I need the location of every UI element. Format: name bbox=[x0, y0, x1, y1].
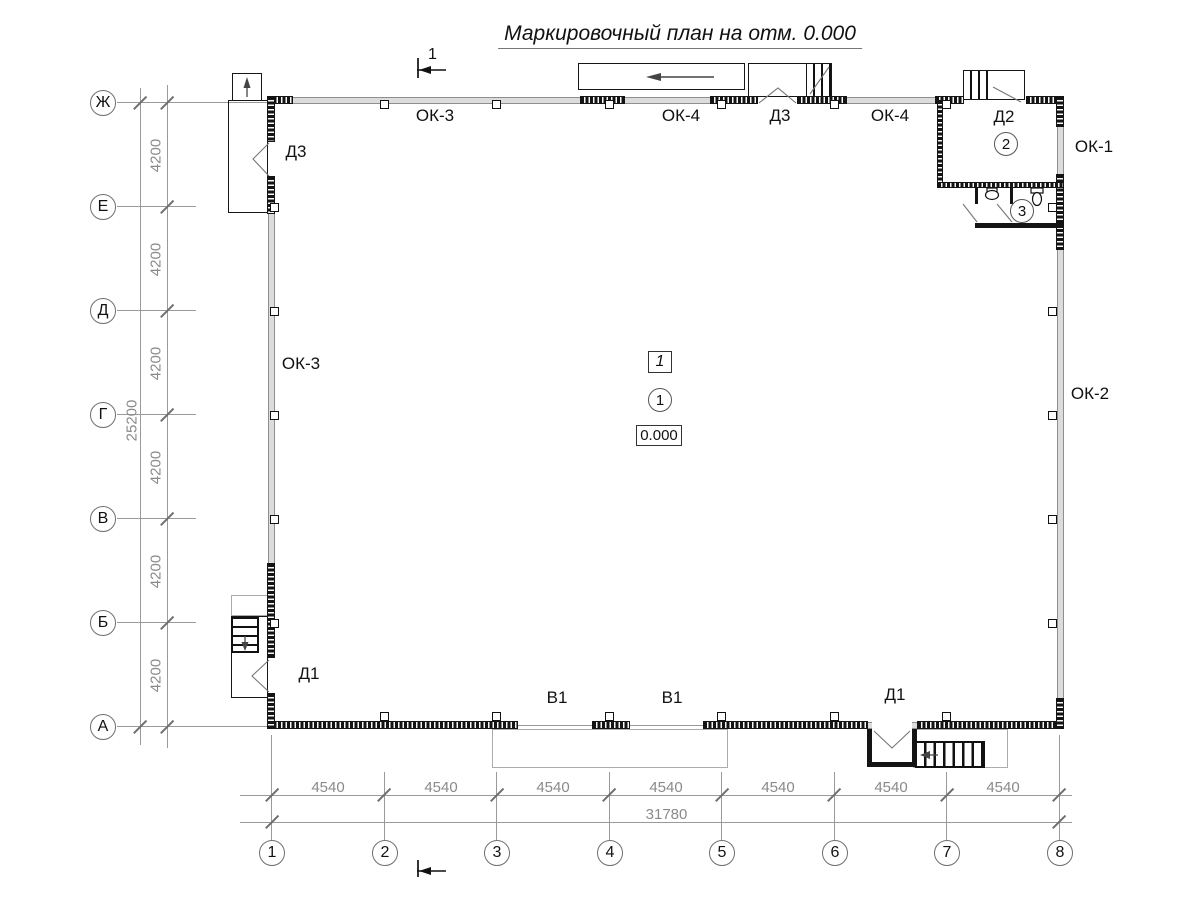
wall-pier bbox=[592, 721, 630, 729]
col-axis-circle: 5 bbox=[709, 840, 735, 866]
column-marker bbox=[1048, 515, 1057, 524]
column-marker bbox=[380, 100, 389, 109]
wall-pier bbox=[1056, 96, 1064, 127]
label-door: Д3 bbox=[286, 142, 307, 162]
col-axis-circle: 8 bbox=[1047, 840, 1073, 866]
dim-text: 4200 bbox=[148, 651, 165, 701]
drawing-title: Маркировочный план на отм. 0.000 bbox=[498, 22, 862, 49]
section-mark-bottom bbox=[417, 860, 446, 877]
grid-extension-line bbox=[384, 772, 385, 841]
row-axis-circle: Д bbox=[90, 298, 116, 324]
room-number-circle: 2 bbox=[994, 132, 1018, 156]
row-axis-circle: Б bbox=[90, 610, 116, 636]
wall-pier bbox=[703, 721, 868, 729]
washroom-wall-bottom bbox=[975, 223, 1064, 228]
column-marker bbox=[942, 100, 951, 109]
washroom-partition bbox=[975, 188, 978, 204]
dim-text: 4200 bbox=[148, 443, 165, 493]
wall-pier bbox=[1056, 698, 1064, 729]
gate-line bbox=[630, 725, 703, 726]
dim-text: 4200 bbox=[148, 339, 165, 389]
recess-wall bbox=[867, 762, 917, 767]
column-marker bbox=[1048, 307, 1057, 316]
dim-text: 4540 bbox=[871, 779, 911, 796]
column-marker bbox=[270, 619, 279, 628]
column-marker bbox=[1048, 619, 1057, 628]
row-axis-circle: А bbox=[90, 714, 116, 740]
column-marker bbox=[380, 712, 389, 721]
col-axis-circle: 7 bbox=[934, 840, 960, 866]
col-axis-circle: 3 bbox=[484, 840, 510, 866]
toilet-icon bbox=[1033, 193, 1042, 206]
column-marker bbox=[1048, 411, 1057, 420]
elevation-marker: 0.000 bbox=[636, 425, 682, 446]
wall-pier bbox=[917, 721, 1064, 729]
porch-topleft bbox=[228, 100, 268, 213]
porch-bottomleft-stair bbox=[231, 617, 259, 653]
sink-icon bbox=[987, 188, 997, 192]
grid-extension-line bbox=[721, 772, 722, 841]
floor-type-marker: 1 bbox=[648, 351, 672, 373]
label-window: ОК-2 bbox=[1071, 384, 1109, 404]
dim-text: 4540 bbox=[308, 779, 348, 796]
column-marker bbox=[830, 712, 839, 721]
grid-extension-line bbox=[117, 310, 196, 311]
wall-pier bbox=[797, 96, 847, 104]
label-gate: В1 bbox=[662, 688, 683, 708]
stair-bottomright bbox=[915, 741, 985, 768]
grid-extension-line bbox=[1059, 735, 1060, 841]
door-opening-d1-left bbox=[268, 658, 275, 693]
room2-wall-bottom bbox=[937, 182, 1064, 188]
col-axis-circle: 4 bbox=[597, 840, 623, 866]
label-door: Д3 bbox=[770, 106, 791, 126]
column-marker bbox=[717, 712, 726, 721]
label-window: ОК-4 bbox=[871, 106, 909, 126]
porch-shaft-topleft bbox=[232, 73, 262, 101]
dim-text: 4540 bbox=[421, 779, 461, 796]
grid-extension-line bbox=[117, 622, 196, 623]
room-number-circle: 3 bbox=[1010, 199, 1034, 223]
column-marker bbox=[270, 515, 279, 524]
col-axis-circle: 6 bbox=[822, 840, 848, 866]
row-axis-circle: В bbox=[90, 506, 116, 532]
column-marker bbox=[1048, 203, 1057, 212]
wall-pier bbox=[268, 721, 518, 729]
porch-topright-stair bbox=[964, 71, 988, 99]
grid-extension-line bbox=[271, 735, 272, 841]
column-marker bbox=[270, 411, 279, 420]
grid-extension-line bbox=[117, 206, 196, 207]
grid-extension-line bbox=[609, 772, 610, 841]
wall-pier bbox=[267, 563, 275, 658]
column-marker bbox=[492, 100, 501, 109]
door-opening-d3-top bbox=[758, 97, 797, 104]
column-marker bbox=[270, 307, 279, 316]
row-axis-circle: Г bbox=[90, 402, 116, 428]
label-window: ОК-1 bbox=[1075, 137, 1113, 157]
section-number: 1 bbox=[428, 46, 437, 64]
sink-icon bbox=[986, 191, 999, 200]
porch-landing bbox=[231, 595, 268, 616]
column-marker bbox=[605, 100, 614, 109]
grid-extension-line bbox=[946, 772, 947, 841]
dim-text-total: 25200 bbox=[124, 389, 141, 453]
label-door: Д1 bbox=[885, 685, 906, 705]
column-marker bbox=[942, 712, 951, 721]
floor-plan-drawing: Маркировочный план на отм. 0.000 4200 42… bbox=[0, 0, 1200, 900]
door-leaf-lines bbox=[252, 67, 1021, 748]
label-door: Д2 bbox=[994, 107, 1015, 127]
dim-text: 4540 bbox=[646, 779, 686, 796]
vestibule-steps bbox=[806, 64, 831, 96]
wall-pier bbox=[267, 96, 275, 142]
gate-apron bbox=[492, 729, 728, 768]
col-axis-circle: 1 bbox=[259, 840, 285, 866]
col-axis-circle: 2 bbox=[372, 840, 398, 866]
loading-ramp bbox=[578, 63, 745, 90]
dimension-line-vertical-segments bbox=[167, 85, 168, 748]
dim-text: 4540 bbox=[533, 779, 573, 796]
row-axis-circle: Е bbox=[90, 194, 116, 220]
grid-extension-line bbox=[834, 772, 835, 841]
column-marker bbox=[492, 712, 501, 721]
dim-text: 4540 bbox=[758, 779, 798, 796]
label-window: ОК-4 bbox=[662, 106, 700, 126]
column-marker bbox=[717, 100, 726, 109]
grid-extension-line bbox=[496, 772, 497, 841]
column-marker bbox=[270, 203, 279, 212]
dim-text-total: 31780 bbox=[639, 806, 694, 823]
dim-text: 4200 bbox=[148, 235, 165, 285]
grid-extension-line bbox=[117, 518, 196, 519]
label-window: ОК-3 bbox=[416, 106, 454, 126]
room-number-circle: 1 bbox=[648, 388, 672, 412]
row-axis-circle: Ж bbox=[90, 90, 116, 116]
label-window: ОК-3 bbox=[282, 354, 320, 374]
dim-text: 4200 bbox=[148, 547, 165, 597]
wall-pier bbox=[267, 693, 275, 729]
recess-wall bbox=[912, 729, 917, 767]
toilet-icon bbox=[1031, 188, 1043, 193]
column-marker bbox=[830, 100, 839, 109]
wall-pier bbox=[580, 96, 625, 104]
dim-text: 4540 bbox=[983, 779, 1023, 796]
dim-text: 4200 bbox=[148, 131, 165, 181]
room2-wall-left bbox=[937, 100, 943, 188]
label-door: Д1 bbox=[299, 664, 320, 684]
column-marker bbox=[605, 712, 614, 721]
door-opening-d3-left bbox=[268, 142, 275, 176]
label-gate: В1 bbox=[547, 688, 568, 708]
gate-line bbox=[518, 725, 592, 726]
door-opening-d1-right bbox=[872, 722, 912, 729]
